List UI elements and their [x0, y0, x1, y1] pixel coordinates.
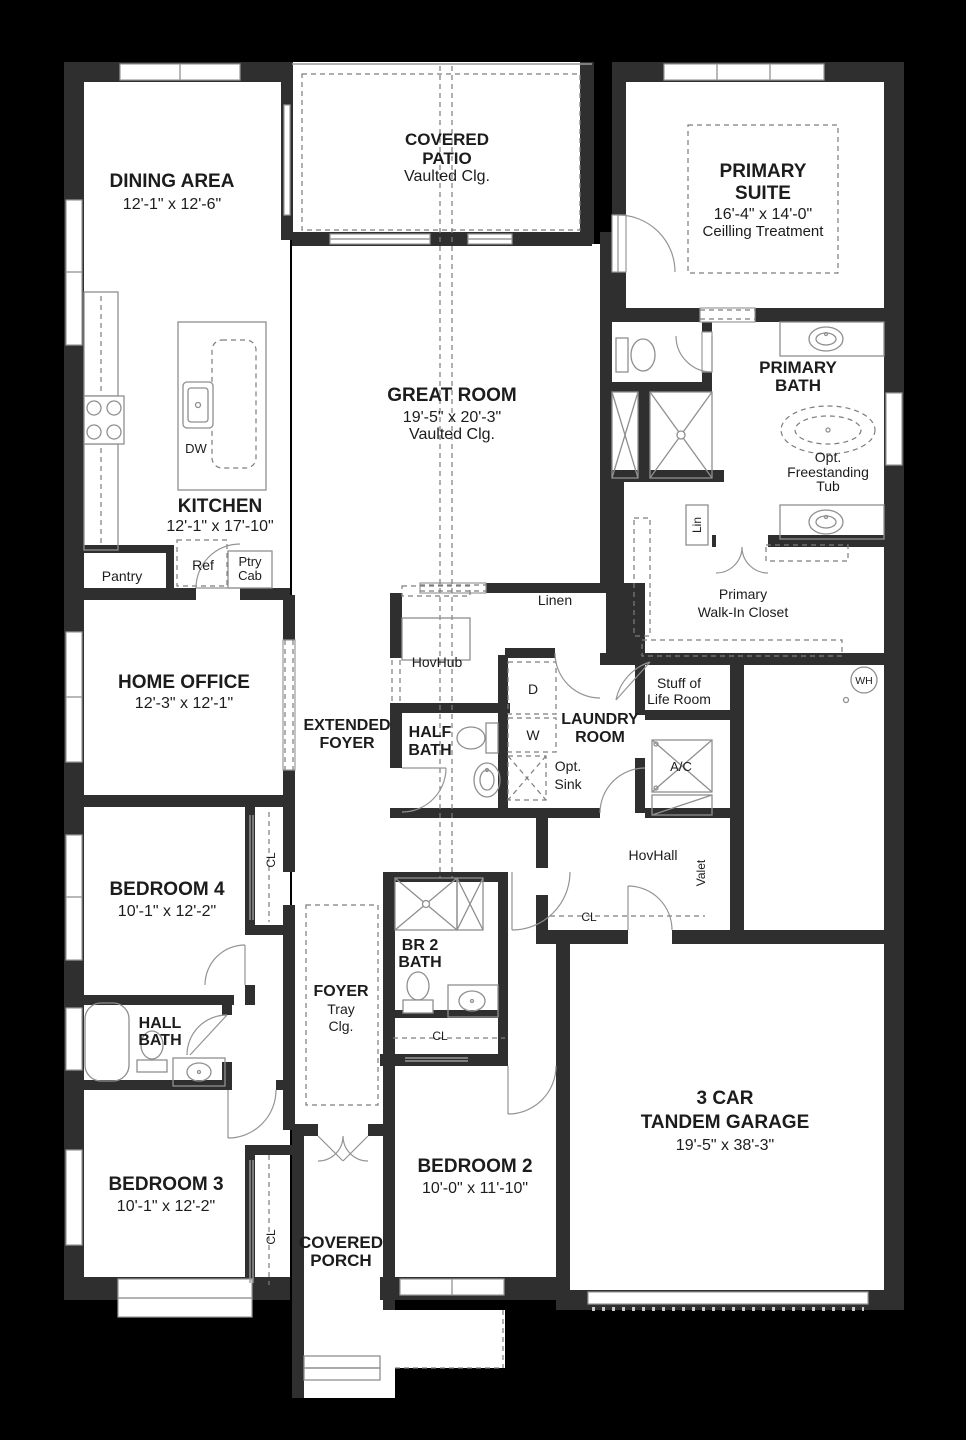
suite-label-1: PRIMARY [720, 161, 807, 182]
bed2-label: BEDROOM 2 [417, 1156, 532, 1177]
dryer-label: D [528, 681, 538, 697]
greatroom-label: GREAT ROOM [387, 385, 516, 406]
wall [390, 593, 402, 658]
closet-label-1: Primary [719, 586, 767, 602]
bed2-dims: 10'-0" x 11'-10" [422, 1180, 528, 1197]
wall [505, 648, 555, 658]
office-dims: 12'-3" x 12'-1" [135, 695, 233, 712]
foyer-label-1: FOYER [313, 983, 369, 1000]
ptrycab-label-2: Cab [238, 568, 262, 583]
pbath-label-1: PRIMARY [759, 358, 837, 377]
greatroom-note: Vaulted Clg. [409, 426, 495, 443]
opt-tub-label-1: Opt. [815, 449, 841, 465]
floor-plan-canvas: DINING AREA 12'-1" x 12'-6" COVERED PATI… [0, 0, 966, 1440]
window [664, 64, 824, 80]
wall [390, 872, 508, 882]
suite-dims: 16'-4" x 14'-0" [714, 206, 812, 223]
porch-floor [292, 1300, 395, 1398]
wall [712, 535, 716, 547]
laundry-label-2: ROOM [575, 729, 625, 746]
foyer-label-2: Tray [327, 1001, 354, 1017]
bed4-label: BEDROOM 4 [109, 879, 225, 900]
wall [245, 985, 255, 1005]
wall [383, 872, 395, 1310]
wc-toilet-icon [616, 338, 655, 372]
porch-label-2: PORCH [310, 1251, 371, 1270]
optsink-label-2: Sink [554, 776, 582, 792]
wall [498, 655, 508, 813]
wall [600, 232, 612, 592]
hallbath-label-1: HALL [139, 1015, 182, 1032]
garage-label-2: TANDEM GARAGE [641, 1112, 810, 1133]
garage-door [588, 1292, 868, 1304]
wall [380, 1054, 508, 1066]
bed4-dims: 10'-1" x 12'-2" [118, 903, 216, 920]
wall [606, 583, 645, 660]
wall [390, 703, 510, 713]
closet-label-2: Walk-In Closet [698, 604, 789, 620]
valet-label: Valet [694, 859, 708, 886]
wall [240, 588, 290, 600]
wall [222, 995, 232, 1015]
floor-plan-drawing: DINING AREA 12'-1" x 12'-6" COVERED PATI… [0, 0, 966, 1440]
cl-br2-label: CL [432, 1029, 448, 1043]
wall [580, 62, 594, 244]
wall [638, 392, 650, 478]
wall [390, 808, 600, 818]
window [886, 393, 902, 465]
utility-wing-floor [600, 590, 904, 930]
lin-label: Lin [690, 517, 704, 533]
bed3-dims: 10'-1" x 12'-2" [117, 1198, 215, 1215]
stuff-label-2: Life Room [647, 691, 711, 707]
garage-label-1: 3 CAR [696, 1088, 753, 1109]
wall [612, 482, 624, 590]
opt-tub-label-3: Tub [816, 478, 840, 494]
window [66, 1150, 82, 1245]
extfoyer-label-2: FOYER [319, 735, 375, 752]
suite-entry-opening [612, 215, 626, 272]
office-label: HOME OFFICE [118, 672, 250, 693]
wall [283, 595, 295, 640]
cl-hall-label: CL [581, 910, 597, 924]
wall [283, 905, 295, 1130]
kitchen-label: KITCHEN [178, 496, 262, 517]
ac-label: A/C [670, 759, 692, 774]
ref-label: Ref [192, 557, 214, 573]
cl-bed4-label: CL [264, 852, 278, 868]
hallbath-label-2: BATH [138, 1032, 181, 1049]
patio-label-2: PATIO [422, 149, 471, 168]
suite-note: Ceilling Treatment [703, 223, 825, 240]
wall [64, 795, 290, 807]
garage-dims: 19'-5" x 38'-3" [676, 1137, 774, 1154]
wall [635, 758, 645, 813]
suite-wing-floor [612, 62, 904, 665]
hovhall-label: HovHall [628, 847, 677, 863]
stove-icon [84, 396, 124, 444]
porch-apron-floor [395, 1310, 505, 1368]
pbath-label-2: BATH [775, 376, 821, 395]
wall [730, 655, 744, 930]
wall [64, 588, 196, 600]
foyer-label-3: Clg. [329, 1018, 354, 1034]
wall [884, 62, 904, 1310]
wall [672, 930, 904, 944]
wall [536, 930, 628, 944]
wall [612, 308, 904, 322]
washer-label: W [526, 727, 540, 743]
extfoyer-label-1: EXTENDED [303, 717, 390, 734]
patio-label-1: COVERED [405, 130, 489, 149]
hovhub-label: HovHub [412, 654, 463, 670]
ptrycab-label-1: Ptry [238, 554, 262, 569]
dining-label: DINING AREA [110, 171, 235, 192]
halfbath-label-2: BATH [408, 742, 451, 759]
wall [702, 372, 712, 392]
wall [292, 1130, 304, 1398]
optsink-label-1: Opt. [555, 758, 581, 774]
window [66, 1008, 82, 1070]
halfbath-label-1: HALF [409, 724, 452, 741]
wall [498, 872, 508, 1062]
br2bath-label-1: BR 2 [402, 937, 439, 954]
wall [702, 322, 712, 332]
wh-label: WH [855, 675, 873, 687]
suite-label-2: SUITE [735, 183, 791, 204]
laundry-label-1: LAUNDRY [561, 711, 639, 728]
wall [64, 995, 234, 1005]
wall [368, 1124, 395, 1136]
dining-patio-glass [284, 105, 290, 215]
stuff-label-1: Stuff of [657, 675, 701, 691]
patio-note: Vaulted Clg. [404, 168, 490, 185]
wall [645, 710, 740, 720]
porch-label-1: COVERED [299, 1233, 383, 1252]
wall [64, 1080, 228, 1090]
wall [612, 82, 626, 215]
dining-dims: 12'-1" x 12'-6" [123, 196, 221, 213]
wall [276, 1080, 290, 1090]
br2bath-label-2: BATH [398, 954, 441, 971]
kitchen-sink-icon [183, 382, 213, 428]
wall [612, 382, 712, 392]
greatroom-dims: 19'-5" x 20'-3" [403, 409, 501, 426]
wc-door-opening [702, 332, 712, 372]
pantry-label: Pantry [102, 568, 142, 584]
wall [283, 807, 295, 872]
wall [64, 545, 174, 553]
bed3-label: BEDROOM 3 [108, 1174, 223, 1195]
kitchen-dims: 12'-1" x 17'-10" [166, 518, 273, 535]
dw-label: DW [185, 441, 207, 456]
wall [536, 818, 548, 868]
wall [390, 713, 402, 768]
linen-label: Linen [538, 592, 572, 608]
left-wing-floor [64, 350, 290, 1300]
cl-bed3-label: CL [264, 1229, 278, 1245]
wall [556, 944, 570, 1290]
